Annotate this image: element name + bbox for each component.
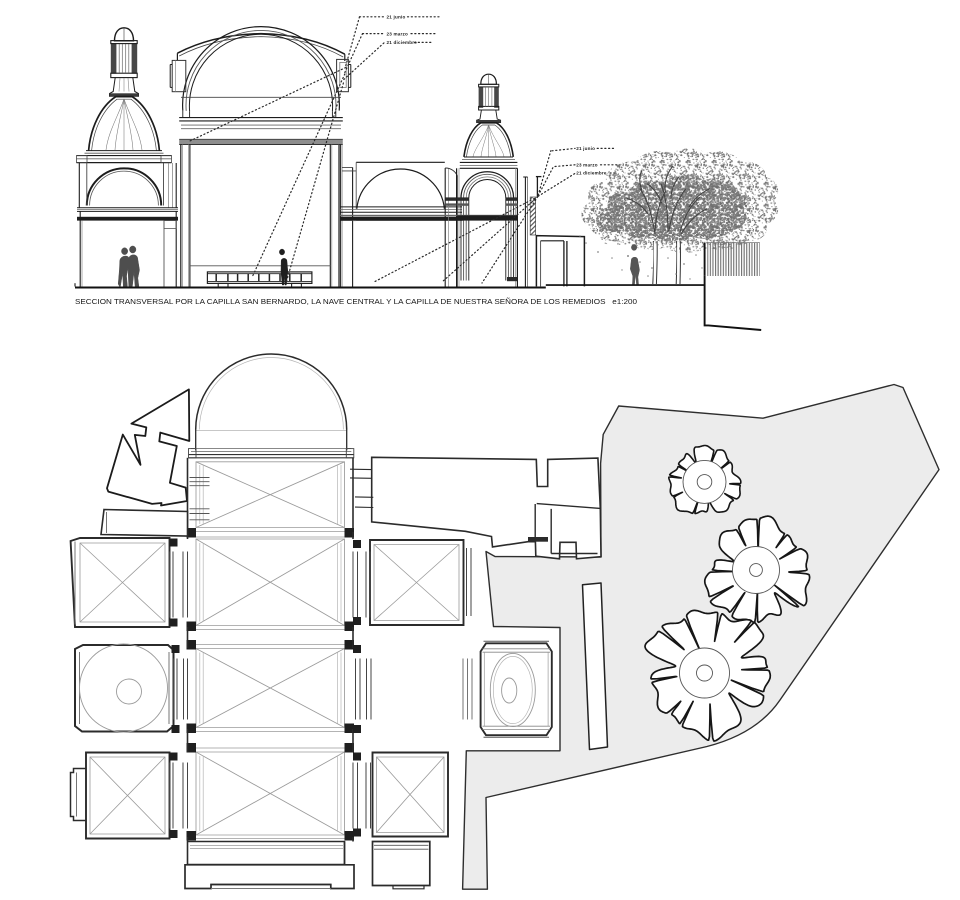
svg-text:21 diciembre: 21 diciembre — [576, 171, 607, 176]
svg-text:23 marzo: 23 marzo — [387, 31, 409, 36]
svg-text:21 junio: 21 junio — [576, 146, 595, 151]
svg-text:23 marzo: 23 marzo — [576, 162, 598, 167]
svg-text:21 diciembre: 21 diciembre — [387, 40, 418, 45]
svg-text:21 junio: 21 junio — [387, 14, 406, 19]
svg-text:SECCION TRANSVERSAL POR LA CAP: SECCION TRANSVERSAL POR LA CAPILLA SAN B… — [75, 297, 637, 306]
